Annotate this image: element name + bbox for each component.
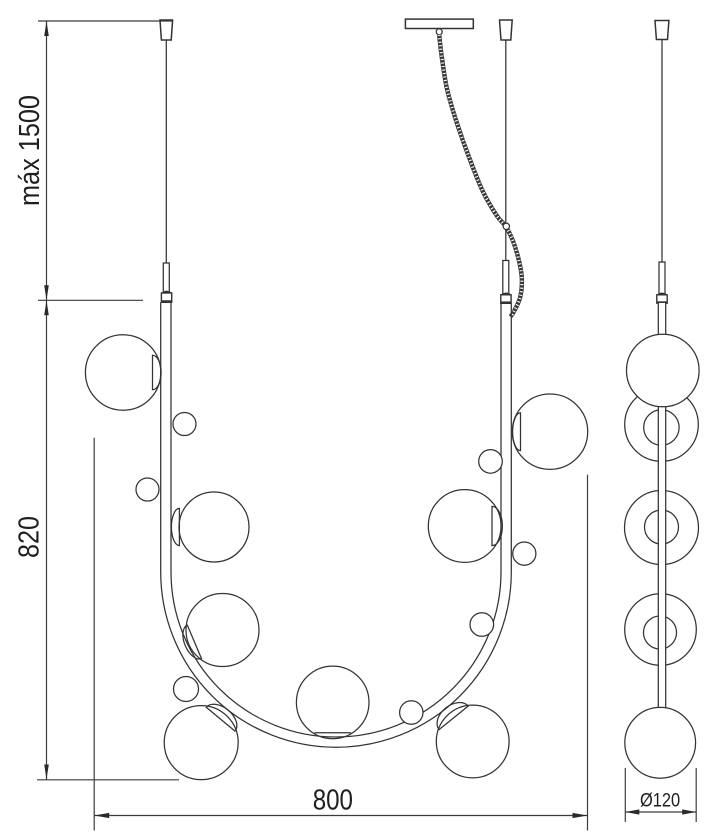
svg-text:máx 1500: máx 1500: [13, 95, 45, 206]
svg-text:820: 820: [13, 516, 45, 558]
svg-text:Ø120: Ø120: [640, 791, 680, 812]
svg-text:800: 800: [313, 783, 353, 815]
